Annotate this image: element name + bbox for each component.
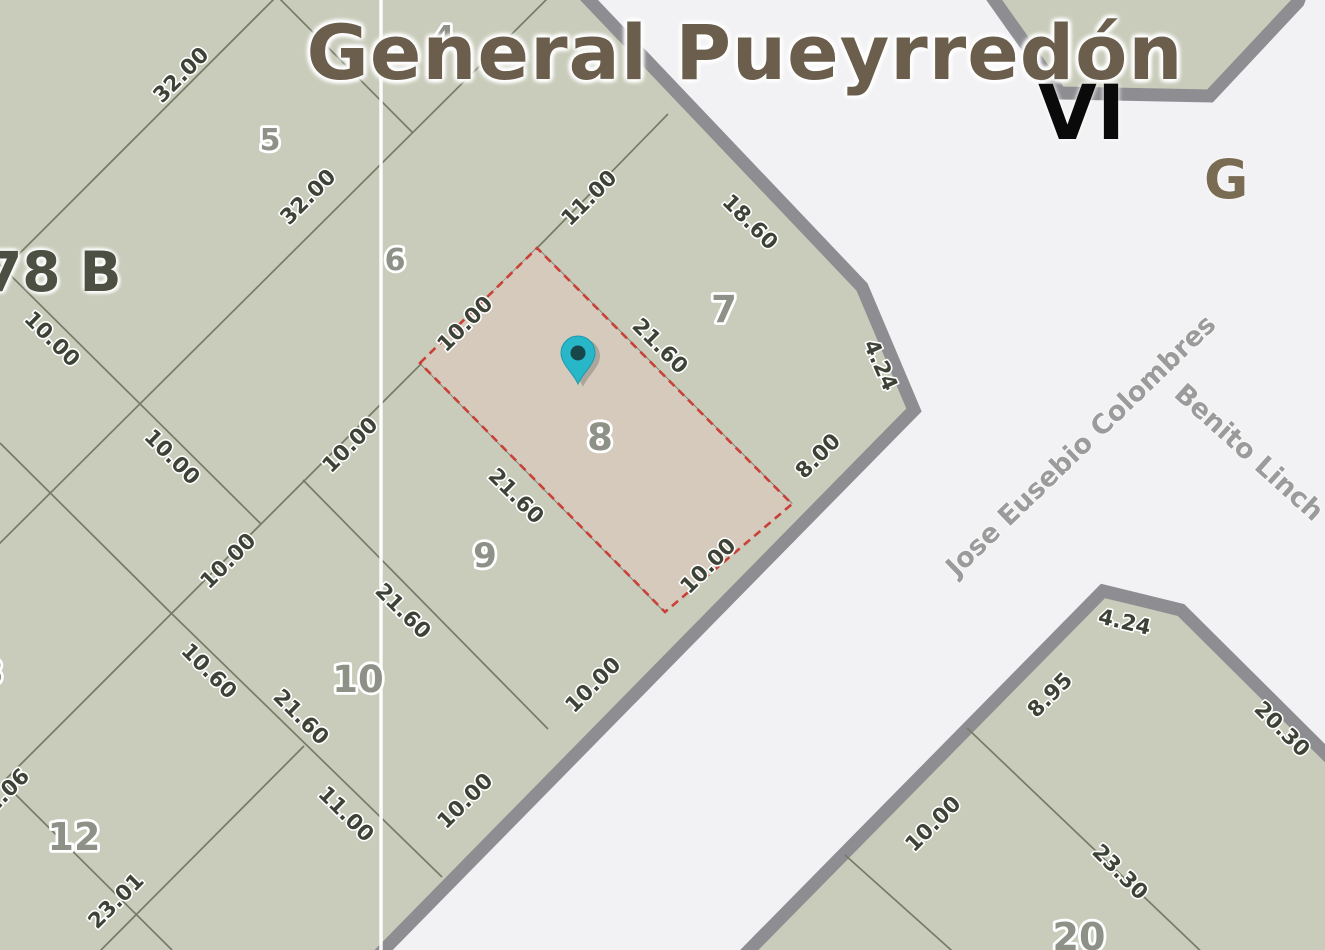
- street-name-label: Jose Eusebio Colombres: [939, 309, 1223, 584]
- street-name-label: Benito Linch: [1168, 378, 1325, 528]
- parcel-number-label: 5: [260, 123, 281, 158]
- parcel-number-label: 3: [0, 653, 4, 693]
- parcel-number-label: 12: [48, 815, 101, 859]
- parcel-number-label: 4: [434, 20, 455, 55]
- cadastral-map[interactable]: 32.0032.0010.0010.0010.0010.0010.0011.00…: [0, 0, 1325, 950]
- map-viewport[interactable]: 32.0032.0010.0010.0010.0010.0010.0011.00…: [0, 0, 1325, 950]
- parcel-number-label: 6: [385, 243, 406, 278]
- map-pin-hole: [571, 346, 586, 361]
- parcel-number-label: 20: [1053, 915, 1106, 950]
- parcel-number-label: 9: [473, 536, 497, 576]
- parcel-number-label: 8: [587, 416, 613, 459]
- parcel-number-label: 10: [332, 658, 384, 701]
- parcel-number-label: 7: [711, 288, 737, 331]
- northeast-block-polygon: [973, 0, 1310, 96]
